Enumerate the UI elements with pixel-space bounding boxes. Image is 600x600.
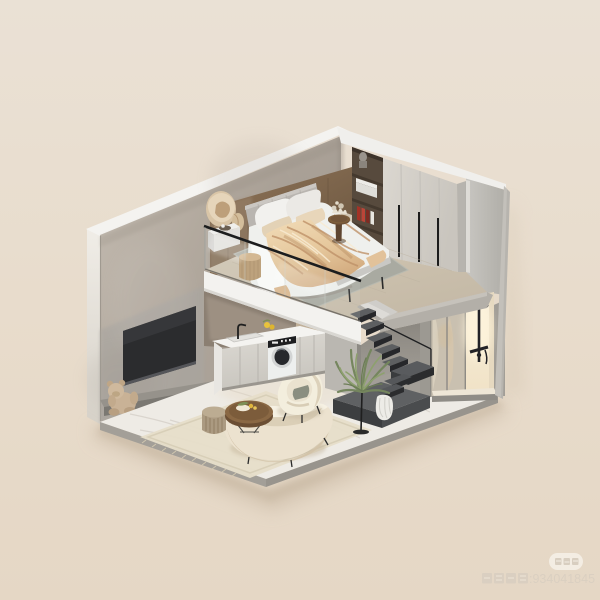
svg-text::934041845: :934041845 [529, 572, 595, 586]
